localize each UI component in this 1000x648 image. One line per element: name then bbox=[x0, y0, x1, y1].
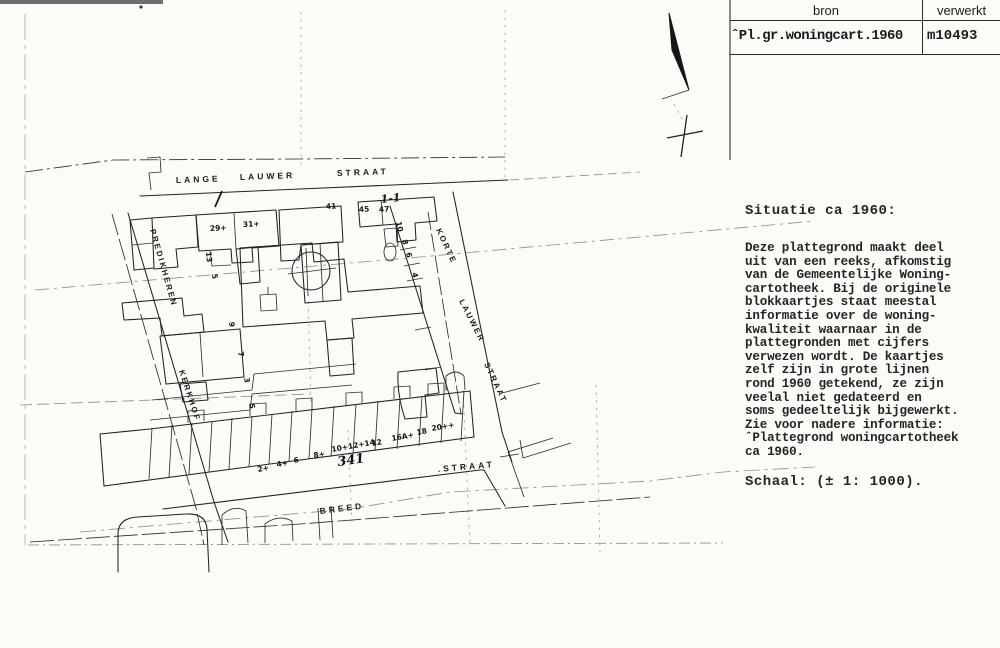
house-number: 8+ bbox=[313, 449, 326, 460]
annotation: 1-1 bbox=[380, 191, 401, 206]
house-number: 18 bbox=[416, 426, 428, 437]
smudge-bar bbox=[0, 0, 163, 4]
street-line-lange-upper bbox=[25, 157, 505, 172]
survey-line bbox=[80, 467, 815, 532]
info-panel: Situatie ca 1960: Deze plattegrond maakt… bbox=[745, 203, 997, 490]
street-label: LAUWER bbox=[457, 298, 486, 344]
street-label: KORTE bbox=[434, 227, 458, 265]
building bbox=[390, 206, 462, 414]
table-value-bron: ˆPl.gr.woningcart.1960 bbox=[730, 21, 922, 54]
house-number: 31+ bbox=[243, 219, 260, 229]
house-number: 8 bbox=[400, 239, 410, 246]
building bbox=[222, 508, 248, 545]
building-divider bbox=[132, 243, 153, 245]
house-number: 10 bbox=[394, 221, 405, 233]
house-number: 41 bbox=[326, 201, 337, 211]
survey-line bbox=[308, 294, 311, 402]
street-lines bbox=[25, 157, 650, 545]
building-divider bbox=[320, 243, 323, 301]
house-number: 5 bbox=[247, 403, 257, 410]
landmark-cross bbox=[288, 248, 336, 296]
house-number: 4 bbox=[410, 272, 420, 279]
building bbox=[240, 243, 423, 340]
smudge-dot bbox=[139, 5, 142, 8]
house-number: 13 bbox=[204, 251, 214, 262]
house-number: 12 bbox=[371, 437, 383, 448]
building bbox=[327, 338, 354, 376]
house-number: 3 bbox=[242, 377, 252, 384]
north-arrow-blade bbox=[669, 13, 689, 90]
building bbox=[265, 518, 293, 543]
table-header-bron: bron bbox=[730, 0, 922, 20]
table-header-row: bron verwerkt bbox=[730, 0, 1000, 21]
lot-divider bbox=[400, 247, 441, 370]
source-table: bron verwerkt ˆPl.gr.woningcart.1960 m10… bbox=[730, 0, 1000, 55]
street-label: BREED bbox=[319, 501, 365, 516]
building-outlines bbox=[122, 197, 465, 419]
map-frame bbox=[25, 0, 730, 545]
building bbox=[236, 247, 260, 284]
street-corner bbox=[147, 157, 161, 190]
building bbox=[260, 287, 277, 311]
survey-line bbox=[596, 385, 600, 552]
house-number: 6 bbox=[293, 455, 300, 465]
street-line-lange-ext bbox=[510, 172, 640, 180]
info-title: Situatie ca 1960: bbox=[745, 203, 997, 219]
street-label: LANGE bbox=[176, 173, 221, 185]
house-number: 29+ bbox=[210, 223, 227, 233]
building bbox=[279, 206, 343, 261]
house-number: 4+ bbox=[276, 458, 289, 469]
house-number: 5 bbox=[210, 273, 219, 279]
street-label: STRAAT bbox=[337, 166, 389, 178]
building-detail bbox=[384, 243, 396, 261]
street-label: LAUWER bbox=[240, 170, 296, 182]
scale-note: Schaal: (± 1: 1000). bbox=[745, 474, 997, 490]
lot-strip bbox=[100, 364, 474, 486]
north-arrow-tail bbox=[662, 90, 689, 99]
house-number: 16A+ bbox=[391, 430, 415, 443]
annotation: 341 bbox=[336, 451, 365, 470]
house-number: 47 bbox=[379, 204, 390, 214]
lot-line bbox=[100, 391, 470, 434]
north-arrow-dash bbox=[674, 104, 684, 122]
building bbox=[118, 514, 209, 572]
table-value-row: ˆPl.gr.woningcart.1960 m10493 bbox=[730, 21, 1000, 55]
frame-line bbox=[28, 543, 723, 545]
south-shapes bbox=[118, 506, 333, 572]
survey-cross-icon bbox=[667, 115, 703, 157]
table-value-verwerkt: m10493 bbox=[922, 21, 1000, 54]
lot-back-building bbox=[188, 383, 444, 423]
building-divider bbox=[234, 213, 236, 249]
house-number: 2+ bbox=[257, 463, 270, 474]
parcel-line bbox=[500, 383, 571, 458]
house-number: 7 bbox=[236, 351, 246, 358]
building bbox=[398, 368, 439, 419]
north-arrow bbox=[662, 13, 703, 157]
survey-lines bbox=[20, 10, 815, 552]
house-number: 9 bbox=[227, 321, 236, 327]
building-divider bbox=[200, 333, 203, 377]
house-number: 45 bbox=[359, 204, 370, 214]
scanned-card-page: LANGE LAUWER STRAAT PREDIKHEREN KERKHOF … bbox=[0, 0, 1000, 648]
check-mark bbox=[215, 191, 222, 207]
handwritten-annotations: 1-1 341 bbox=[215, 191, 401, 470]
info-body: Deze plattegrond maakt deel uit van een … bbox=[745, 242, 997, 460]
street-line-breed-upper bbox=[163, 470, 505, 509]
table-header-verwerkt: verwerkt bbox=[922, 0, 1000, 20]
lot-line bbox=[100, 391, 474, 486]
scan-smudge bbox=[0, 0, 163, 9]
house-number: 20++ bbox=[431, 420, 455, 433]
